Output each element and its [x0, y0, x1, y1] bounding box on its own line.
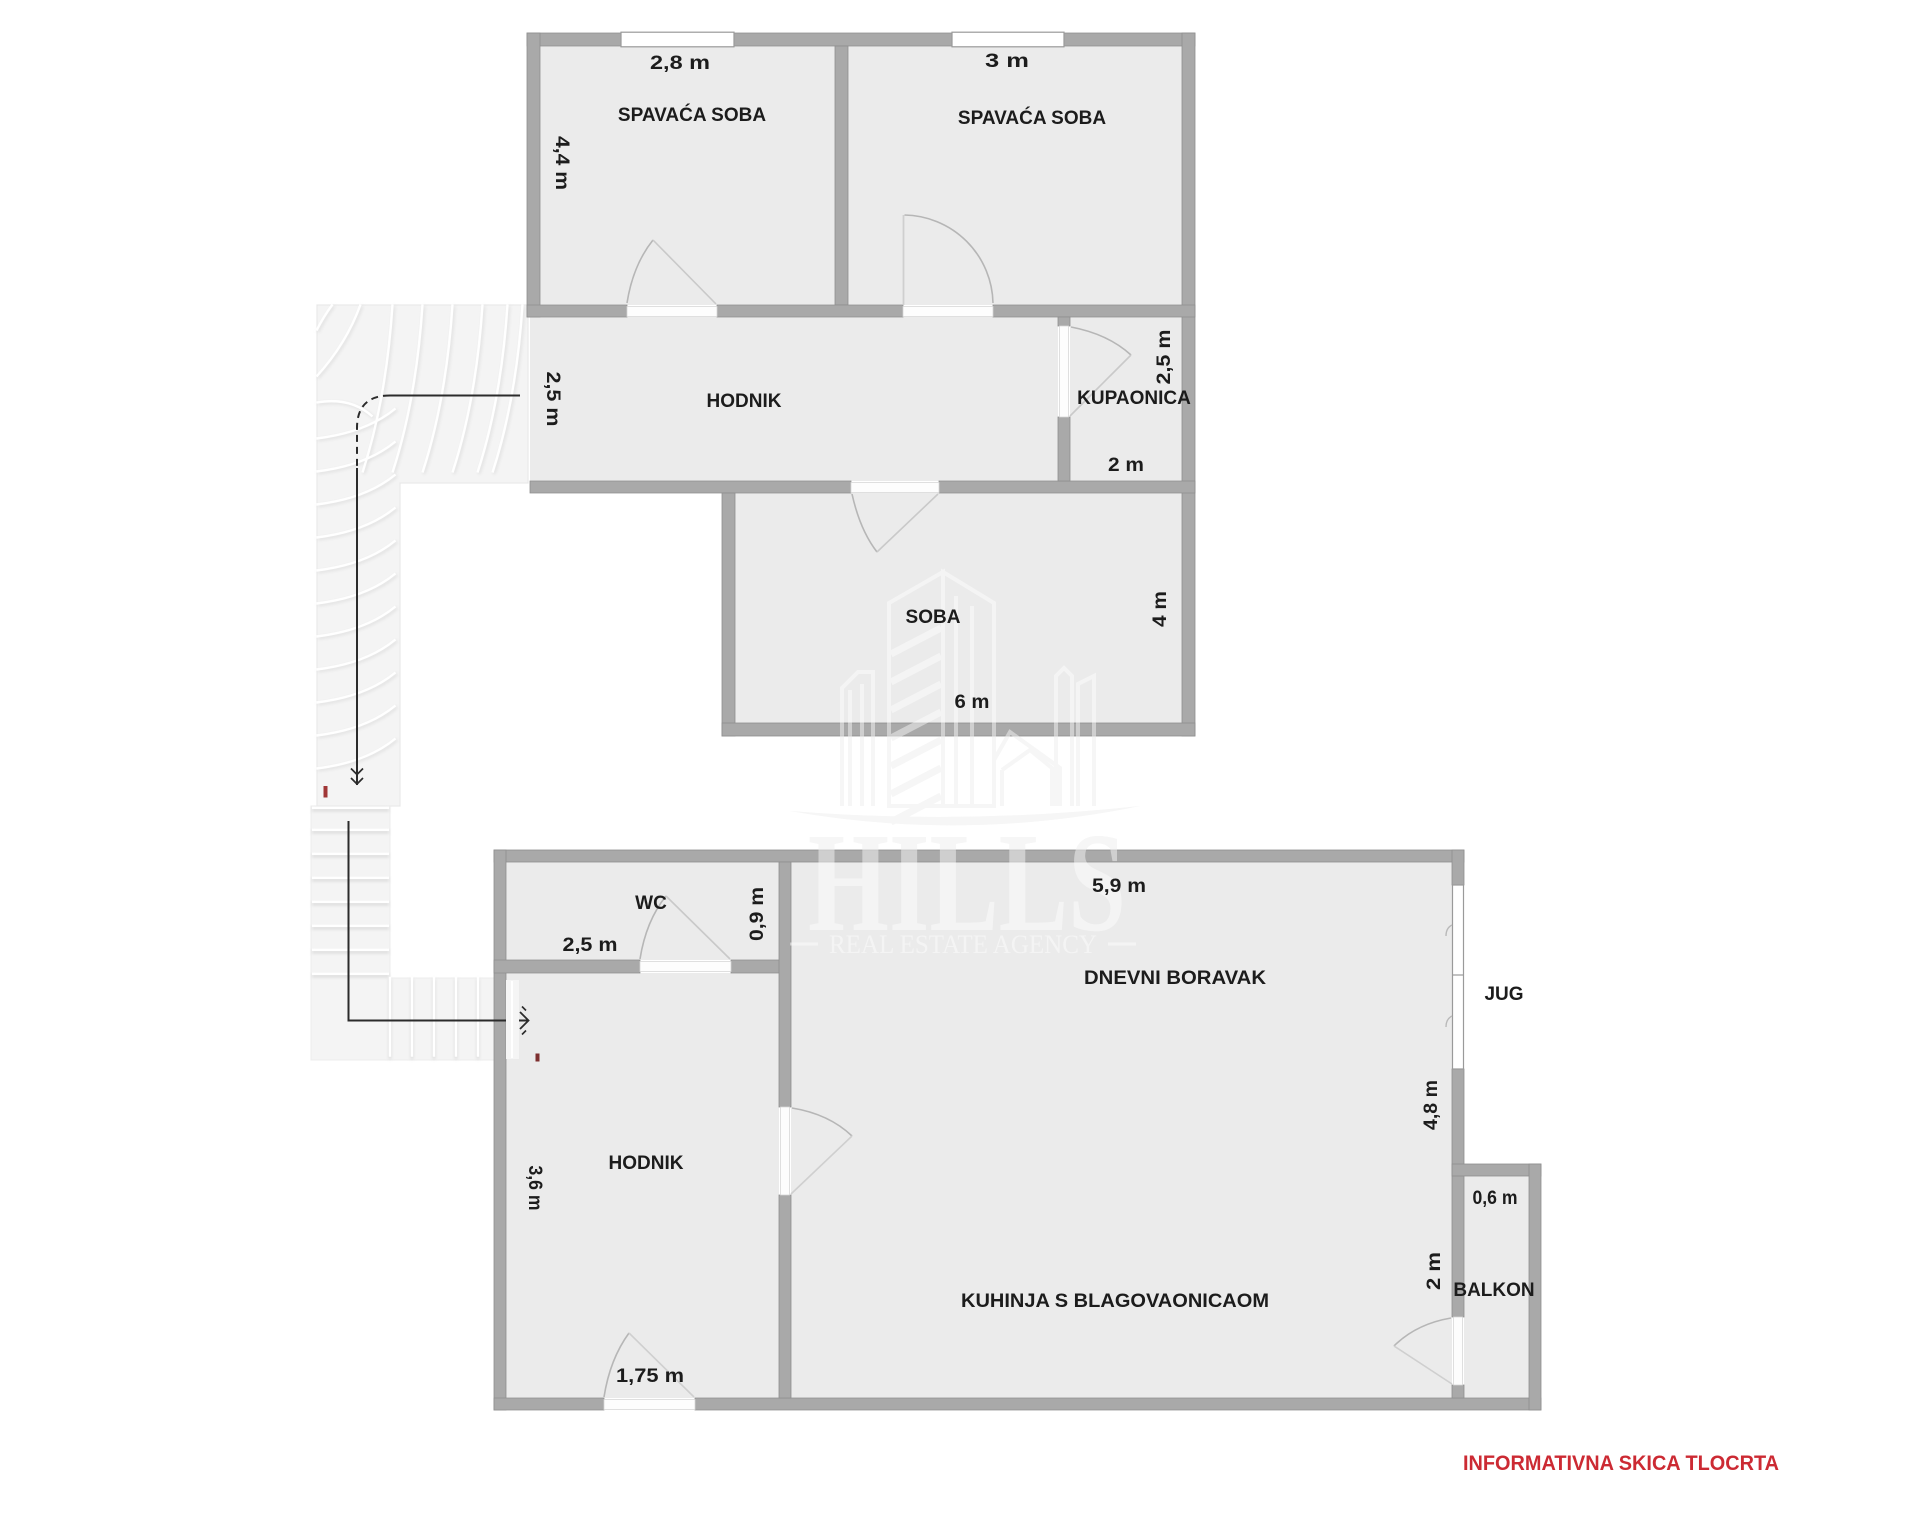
svg-text:HODNIK: HODNIK [609, 1153, 684, 1174]
svg-text:2 m: 2 m [1424, 1252, 1445, 1290]
svg-text:3 m: 3 m [985, 51, 1029, 72]
svg-text:2 m: 2 m [1108, 455, 1144, 476]
svg-text:6 m: 6 m [955, 692, 990, 713]
svg-text:SOBA: SOBA [906, 607, 961, 628]
svg-text:4,8 m: 4,8 m [1421, 1080, 1442, 1130]
svg-text:SPAVAĆA SOBA: SPAVAĆA SOBA [958, 107, 1106, 129]
svg-text:2,5 m: 2,5 m [1154, 330, 1175, 385]
svg-text:2,5 m: 2,5 m [542, 372, 563, 427]
svg-text:KUHINJA S BLAGOVAONICAOM: KUHINJA S BLAGOVAONICAOM [961, 1291, 1269, 1312]
svg-text:2,8 m: 2,8 m [650, 53, 710, 74]
svg-text:REAL ESTATE AGENCY: REAL ESTATE AGENCY [829, 930, 1097, 959]
svg-text:HODNIK: HODNIK [707, 391, 782, 412]
svg-text:2,5 m: 2,5 m [563, 935, 618, 956]
svg-text:4,4 m: 4,4 m [551, 136, 572, 190]
svg-text:INFORMATIVNA SKICA TLOCRTA: INFORMATIVNA SKICA TLOCRTA [1463, 1452, 1779, 1475]
svg-text:BALKON: BALKON [1453, 1280, 1534, 1301]
svg-text:5,9 m: 5,9 m [1092, 876, 1146, 897]
svg-text:KUPAONICA: KUPAONICA [1077, 388, 1191, 409]
svg-text:SPAVAĆA SOBA: SPAVAĆA SOBA [618, 104, 766, 126]
svg-text:4 m: 4 m [1150, 591, 1171, 627]
svg-text:JUG: JUG [1484, 984, 1523, 1005]
svg-text:3,6 m: 3,6 m [524, 1166, 545, 1211]
svg-text:1,75 m: 1,75 m [616, 1366, 684, 1387]
svg-text:0,9 m: 0,9 m [747, 887, 768, 941]
svg-text:0,6 m: 0,6 m [1473, 1188, 1518, 1209]
svg-text:DNEVNI BORAVAK: DNEVNI BORAVAK [1084, 968, 1266, 989]
svg-text:WC: WC [635, 893, 667, 914]
